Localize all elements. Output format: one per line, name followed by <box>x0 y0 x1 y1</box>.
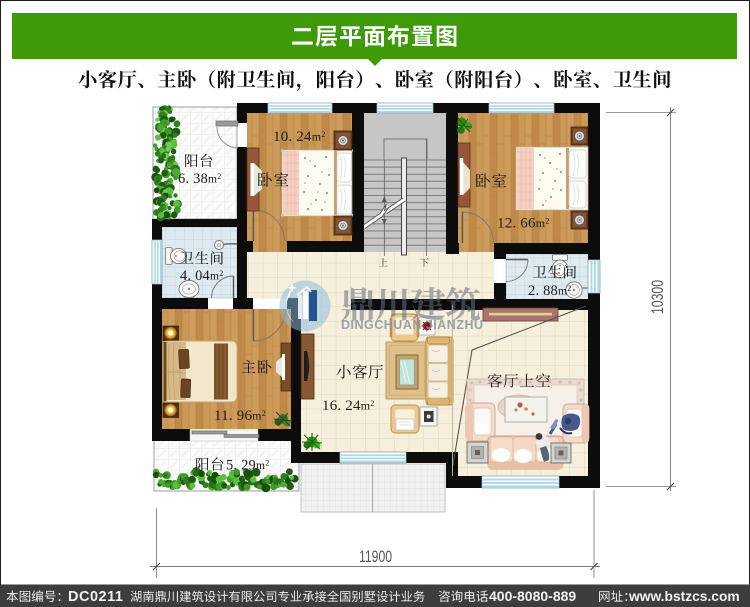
svg-text:4. 04m2: 4. 04m2 <box>180 268 223 284</box>
svg-text:www.bstzcs.com: www.bstzcs.com <box>628 589 740 604</box>
svg-text:DC0211: DC0211 <box>68 589 123 605</box>
svg-text:400-8080-889: 400-8080-889 <box>489 588 576 604</box>
svg-text:12. 66m2: 12. 66m2 <box>497 216 550 232</box>
svg-text:5. 29m2: 5. 29m2 <box>226 458 269 474</box>
svg-text:DINGCHUAN JIANZHU: DINGCHUAN JIANZHU <box>341 318 484 332</box>
svg-text:2. 88m2: 2. 88m2 <box>528 283 571 299</box>
svg-text:10. 24m2: 10. 24m2 <box>273 129 326 145</box>
svg-text:10300: 10300 <box>649 280 667 314</box>
svg-text:11. 96m2: 11. 96m2 <box>214 408 266 424</box>
svg-text:11900: 11900 <box>359 548 392 566</box>
svg-text:16. 24m2: 16. 24m2 <box>322 398 375 414</box>
svg-text:6. 38m2: 6. 38m2 <box>178 171 221 187</box>
